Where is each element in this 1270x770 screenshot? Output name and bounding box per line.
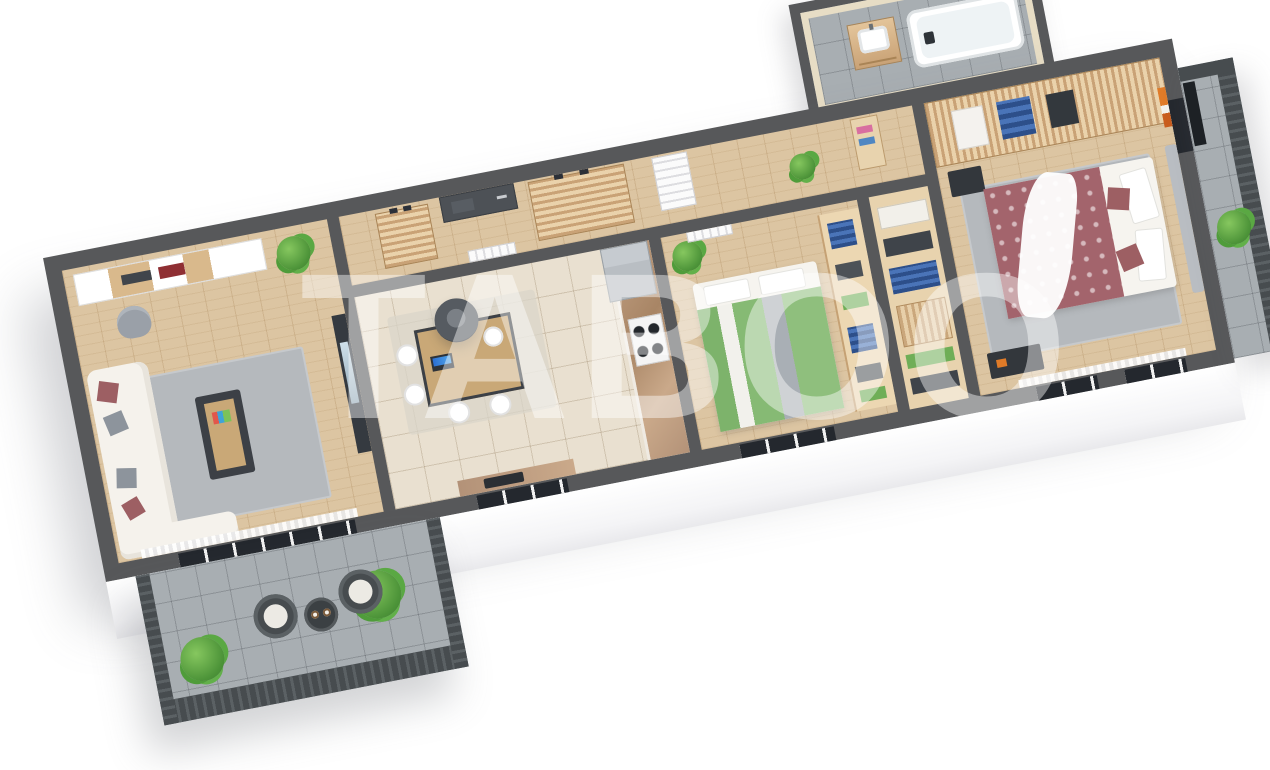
decor-books (158, 262, 186, 279)
bathtub-basin (915, 0, 1015, 59)
slatted-cabinet (896, 297, 953, 348)
storage-bag (1045, 89, 1079, 128)
potted-plant (670, 238, 705, 273)
double-bed-green (692, 261, 844, 432)
shoe-cabinet-large (527, 164, 635, 242)
shoes-pair (403, 205, 412, 211)
towel-pink (856, 124, 873, 134)
kitchen-sink (483, 471, 524, 488)
apartment-3d-scene (10, 0, 1270, 770)
folded-linen (951, 105, 990, 150)
shoes-pair (389, 208, 398, 214)
floor-plan-render: TABOO (0, 0, 1270, 714)
bathroom-door-white (651, 151, 697, 211)
shoes-pair (579, 168, 589, 175)
laptop (430, 353, 454, 372)
storage-bag (910, 370, 960, 395)
apartment-body (43, 39, 1235, 582)
storage-niche (849, 114, 886, 170)
bathtub (905, 0, 1026, 69)
potted-plant (787, 151, 817, 181)
hanging-shirts-blue (889, 260, 941, 295)
palm-plant (274, 233, 314, 273)
refrigerator (600, 241, 657, 303)
serving-tray (482, 325, 505, 348)
gas-hob (628, 313, 671, 367)
hanging-shirts-blue (847, 323, 877, 353)
decor-orange (996, 358, 1007, 368)
entrance-door-panel (451, 198, 475, 214)
living-door-open (467, 242, 516, 263)
chair-cushion (262, 602, 290, 630)
tv-screen (340, 341, 360, 403)
green-duvet (697, 286, 844, 432)
hanging-shirts-blue (996, 96, 1037, 140)
living-room (62, 219, 384, 563)
pillow-red (97, 381, 119, 403)
door-handle-icon (497, 194, 507, 199)
storage-bag (855, 362, 884, 383)
pillow-mauve (1107, 187, 1130, 210)
bistro-table (301, 595, 341, 635)
storage-bag (835, 260, 864, 281)
towel-blue (858, 136, 875, 146)
folded-clothes-green (841, 292, 869, 311)
tv-on-shelf (121, 270, 152, 286)
wall-shelving-unit (73, 238, 268, 306)
folded-clothes-green (859, 386, 887, 403)
shoes-pair (554, 173, 564, 180)
chair-cushion (346, 578, 374, 606)
entrance-door (439, 183, 519, 223)
pillow-gray (116, 468, 136, 488)
coffee-cup (322, 608, 331, 617)
storage-bag (883, 230, 934, 257)
vanity-drawer-line (859, 57, 897, 66)
vanity-cabinet (846, 16, 902, 70)
faucet-icon (869, 23, 874, 30)
armchair (114, 303, 153, 341)
bedroom-green (661, 200, 899, 450)
laptop-screen (432, 355, 451, 366)
bedroom-door-open (686, 222, 733, 243)
folded-clothes-green (905, 346, 955, 369)
balcony-plant-left (177, 633, 229, 685)
bathtub-headrest (923, 31, 935, 45)
hanging-shirts-blue (827, 219, 857, 249)
railing-right (1215, 57, 1270, 351)
shoe-cabinet-small (375, 204, 439, 269)
kitchen-dining (354, 240, 690, 509)
boiler-white (877, 199, 930, 230)
railing-left (135, 574, 178, 726)
rattan-chair-left (250, 590, 302, 642)
coffee-cup (310, 610, 319, 619)
